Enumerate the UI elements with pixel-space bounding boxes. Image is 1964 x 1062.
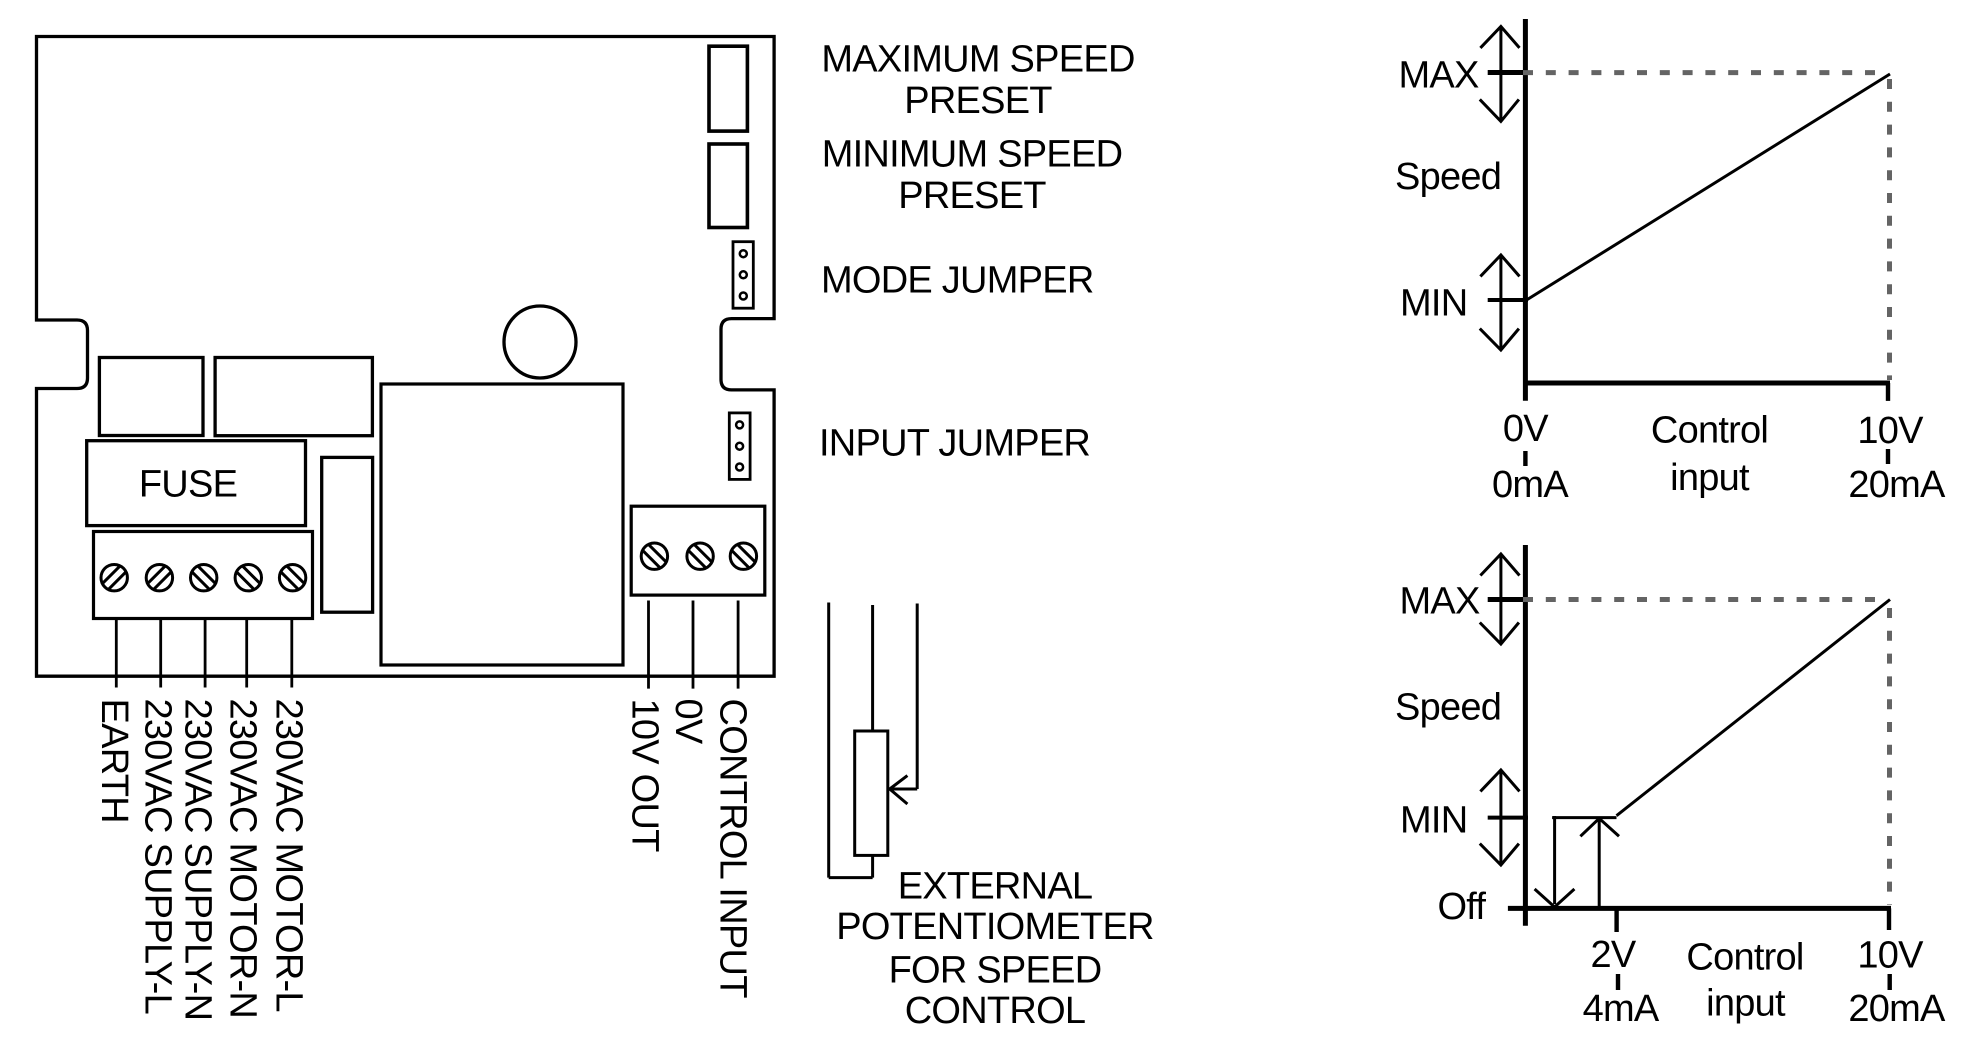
svg-text:Off: Off [1438,886,1487,928]
svg-text:MODE JUMPER: MODE JUMPER [821,260,1094,302]
svg-text:Speed: Speed [1395,687,1501,729]
svg-text:Control: Control [1686,937,1803,979]
svg-text:Control: Control [1651,410,1768,452]
svg-text:PRESET: PRESET [904,80,1052,122]
svg-text:CONTROL: CONTROL [905,990,1086,1032]
svg-text:0V: 0V [667,699,709,745]
svg-text:4mA: 4mA [1583,988,1660,1030]
svg-text:POTENTIOMETER: POTENTIOMETER [836,906,1153,948]
svg-text:FUSE: FUSE [139,464,237,506]
svg-text:230VAC MOTOR-L: 230VAC MOTOR-L [267,699,309,1012]
svg-text:FOR SPEED: FOR SPEED [889,950,1102,992]
svg-text:EARTH: EARTH [93,699,135,823]
svg-text:230VAC MOTOR-N: 230VAC MOTOR-N [222,699,264,1019]
svg-text:MINIMUM SPEED: MINIMUM SPEED [822,134,1123,176]
svg-text:INPUT JUMPER: INPUT JUMPER [819,423,1090,465]
svg-text:20mA: 20mA [1848,988,1946,1030]
svg-text:EXTERNAL: EXTERNAL [898,866,1093,908]
svg-text:MIN: MIN [1400,800,1467,842]
svg-text:20mA: 20mA [1848,464,1946,506]
svg-text:MAX: MAX [1399,55,1480,97]
svg-text:MAXIMUM SPEED: MAXIMUM SPEED [821,39,1134,81]
svg-text:10V OUT: 10V OUT [624,699,666,853]
svg-text:0mA: 0mA [1492,464,1569,506]
svg-text:MIN: MIN [1400,283,1467,325]
svg-text:CONTROL INPUT: CONTROL INPUT [711,699,753,999]
svg-text:input: input [1670,457,1750,499]
svg-text:230VAC SUPPLY-N: 230VAC SUPPLY-N [177,699,219,1021]
svg-text:10V: 10V [1857,410,1924,452]
svg-text:PRESET: PRESET [898,175,1046,217]
svg-text:MAX: MAX [1400,581,1481,623]
svg-text:2V: 2V [1591,934,1637,976]
svg-text:input: input [1706,983,1786,1025]
svg-text:10V: 10V [1857,935,1924,977]
svg-text:Speed: Speed [1395,156,1501,198]
svg-text:230VAC SUPPLY-L: 230VAC SUPPLY-L [137,699,179,1014]
svg-text:0V: 0V [1503,408,1549,450]
